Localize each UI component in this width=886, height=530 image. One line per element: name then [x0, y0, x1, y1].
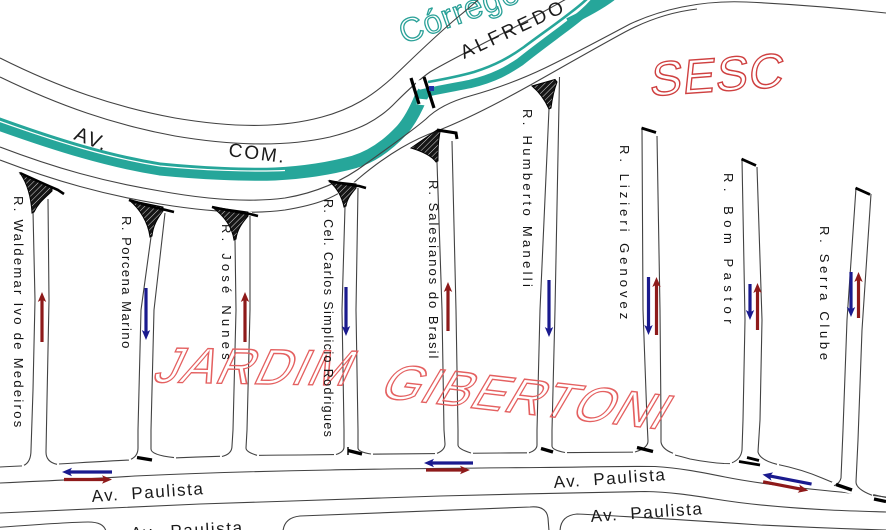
svg-text:R. Salesianos do Brasil: R. Salesianos do Brasil	[426, 180, 441, 360]
svg-text:R. Humberto Manelli: R. Humberto Manelli	[520, 109, 535, 290]
svg-text:COM.: COM.	[227, 140, 287, 168]
svg-text:R. Waldemar Ivo de Medeiros: R. Waldemar Ivo de Medeiros	[11, 196, 26, 430]
svg-text:R. Bom Pastor: R. Bom Pastor	[721, 173, 736, 329]
svg-text:R. José Nunes: R. José Nunes	[219, 224, 234, 364]
svg-text:R. Porcena Marino: R. Porcena Marino	[119, 216, 134, 350]
svg-text:R. Cel. Carlos Simplicio Rodri: R. Cel. Carlos Simplicio Rodrigues	[321, 199, 335, 438]
svg-text:Av.Paulista: Av.Paulista	[130, 518, 244, 530]
svg-text:Av.Paulista: Av.Paulista	[553, 465, 667, 492]
svg-text:R. Serra Clube: R. Serra Clube	[817, 226, 832, 364]
svg-text:Av.Paulista: Av.Paulista	[91, 479, 205, 506]
svg-text:SESC: SESC	[648, 44, 788, 108]
svg-text:R. Lizieri Genovez: R. Lizieri Genovez	[617, 145, 632, 323]
svg-text:Av.Paulista: Av.Paulista	[590, 499, 704, 526]
svg-text:GIBERTONI: GIBERTONI	[371, 356, 686, 441]
